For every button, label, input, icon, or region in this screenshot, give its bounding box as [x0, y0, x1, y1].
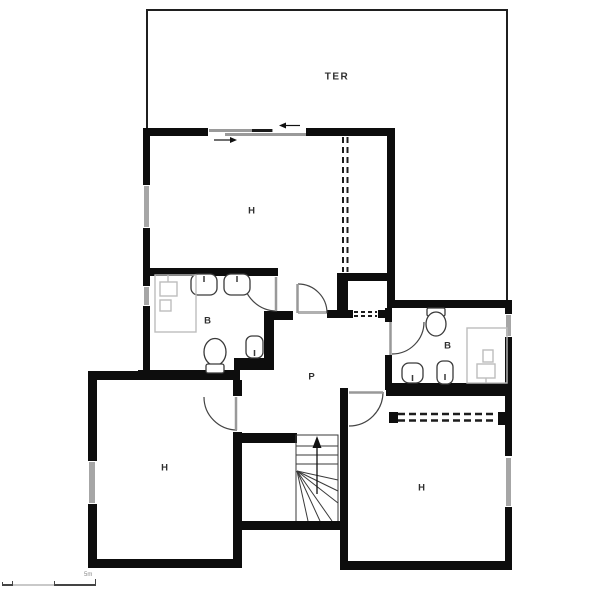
wall-segment: [378, 310, 392, 318]
wall-segment: [235, 521, 343, 530]
window: [144, 186, 149, 227]
wall-segment: [143, 128, 150, 185]
wall-stub: [389, 412, 398, 423]
sliding-door: [209, 129, 306, 136]
arrow-head-right: [230, 137, 237, 143]
vanity-counter: [467, 328, 507, 383]
wall-segment: [233, 432, 242, 564]
wall-segment: [327, 310, 353, 318]
wall-segment: [143, 306, 150, 378]
scale-tick: [95, 579, 96, 586]
scale-bar-label: 5m: [84, 572, 92, 578]
door-arc-hall-top: [298, 284, 327, 313]
stairs-up-arrow-head: [313, 436, 322, 448]
scale-tick: [12, 581, 13, 586]
wall-segment: [505, 303, 512, 314]
room-label-bathroom-left: B: [204, 316, 212, 327]
vanity-counter: [155, 275, 196, 332]
wall-segment: [88, 559, 242, 568]
wall-segment: [143, 128, 208, 136]
sink-icon: [437, 361, 453, 384]
wall-segment: [340, 561, 512, 570]
toilet-icon: [204, 339, 226, 366]
sliding-direction-arrows: [214, 123, 300, 144]
wall-segment: [233, 380, 242, 396]
wall-segment: [343, 273, 390, 281]
staircase: [296, 435, 338, 521]
sliding-panel: [225, 133, 306, 136]
room-label-hallway-center: P: [308, 372, 315, 383]
wall-segment: [306, 128, 395, 136]
terrace-edge-left: [146, 9, 148, 129]
scale-tick: [54, 581, 55, 586]
toilet-icon: [426, 312, 446, 336]
fixtures: [191, 274, 453, 384]
sliding-panel-overlap: [252, 129, 272, 132]
wall-segment: [505, 337, 512, 456]
toilet-tank: [206, 364, 224, 373]
wall-segment: [234, 358, 274, 370]
scale-segment: [2, 584, 13, 586]
room-label-room-bottom-right: H: [418, 483, 426, 494]
wall-segment: [387, 300, 512, 308]
door-arc-room-bottom-right: [349, 392, 383, 426]
room-label-terrace: TER: [325, 72, 350, 83]
vanity-basin: [477, 364, 495, 378]
wall-segment: [505, 507, 512, 570]
door-arc-bathroom-right: [392, 322, 424, 354]
vanity-basin: [160, 300, 171, 311]
window: [144, 287, 149, 305]
scale-bar: [2, 579, 96, 586]
wall-segment: [88, 371, 97, 461]
room-label-room-bottom-left: H: [161, 463, 169, 474]
terrace-edge-right: [506, 9, 508, 304]
window: [89, 462, 95, 503]
wall-segment: [340, 388, 348, 570]
floor-plan-drawing: [0, 0, 600, 600]
window: [506, 458, 511, 506]
floor-plan-canvas: TER H B P B H H 5m: [0, 0, 600, 600]
wall-segment: [385, 355, 392, 390]
terrace-edge-top: [146, 9, 508, 11]
terrace-outline: [146, 9, 508, 304]
scale-segment: [13, 584, 55, 586]
room-label-hall-top: H: [248, 206, 256, 217]
wall-segment: [143, 228, 150, 286]
vanity-basin: [160, 282, 177, 296]
scale-segment: [55, 584, 96, 586]
arrow-head-left: [279, 123, 286, 129]
door-sill: [298, 311, 327, 314]
vanity-basin: [483, 350, 493, 362]
wall-segment: [271, 311, 293, 320]
door-arc-room-bottom-left: [204, 397, 237, 430]
wall-segment: [235, 433, 297, 443]
scale-tick: [2, 582, 3, 586]
room-label-bathroom-right: B: [444, 341, 452, 352]
wall-segment: [386, 383, 512, 396]
wall-stub: [498, 412, 507, 425]
wall-segment: [88, 504, 97, 568]
